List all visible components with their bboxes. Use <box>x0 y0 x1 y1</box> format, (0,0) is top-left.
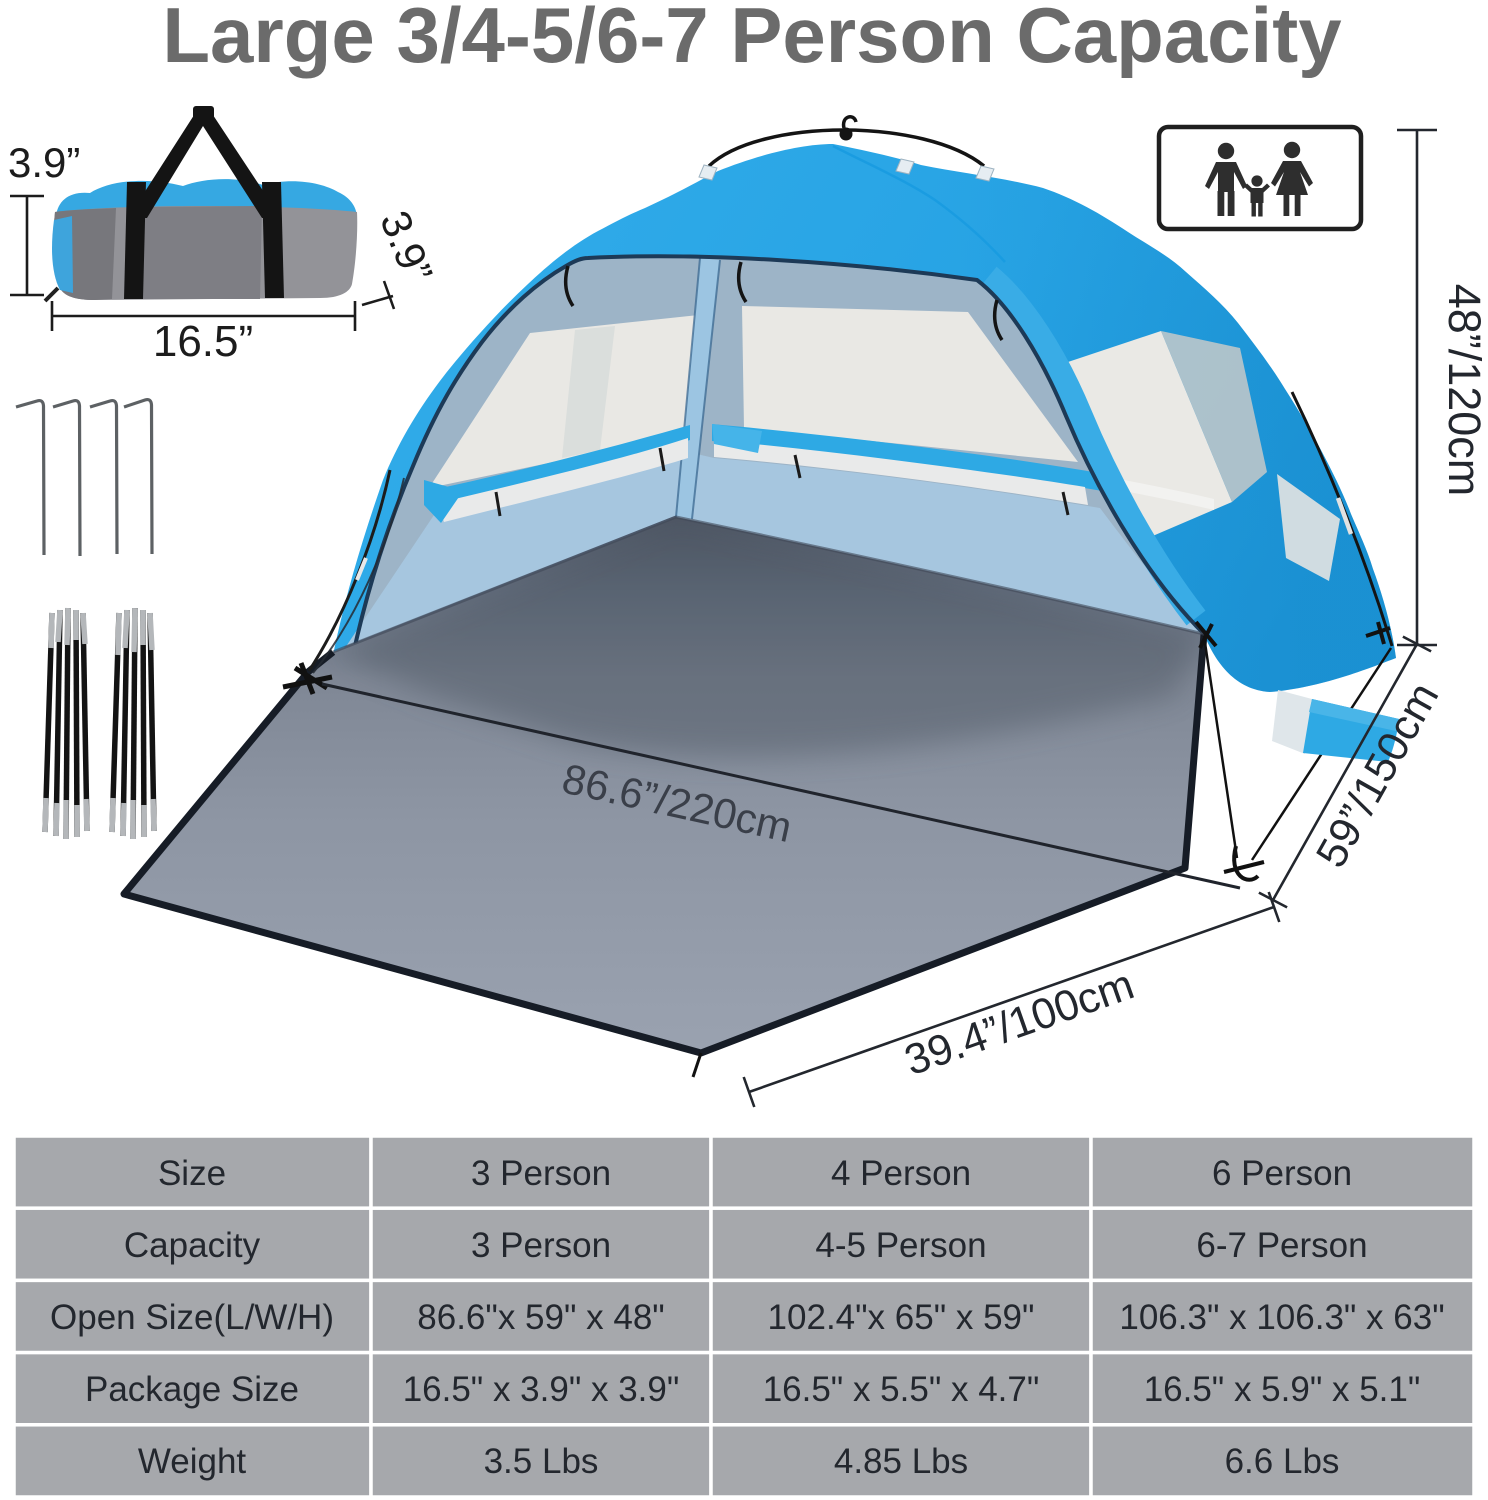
svg-text:4.85 Lbs: 4.85 Lbs <box>834 1442 968 1481</box>
svg-text:6 Person: 6 Person <box>1212 1154 1352 1193</box>
svg-text:16.5”: 16.5” <box>153 317 253 366</box>
svg-text:16.5" x 5.5" x 4.7": 16.5" x 5.5" x 4.7" <box>763 1370 1040 1409</box>
svg-text:4 Person: 4 Person <box>831 1154 971 1193</box>
svg-text:16.5" x 3.9" x 3.9": 16.5" x 3.9" x 3.9" <box>403 1370 680 1409</box>
svg-text:86.6"x 59" x 48": 86.6"x 59" x 48" <box>417 1298 664 1337</box>
svg-text:106.3" x 106.3" x 63": 106.3" x 106.3" x 63" <box>1119 1298 1444 1337</box>
svg-text:Large 3/4-5/6-7 Person Capacit: Large 3/4-5/6-7 Person Capacity <box>162 0 1341 79</box>
svg-text:Capacity: Capacity <box>124 1226 261 1265</box>
svg-text:Open Size(L/W/H): Open Size(L/W/H) <box>50 1298 334 1337</box>
svg-text:16.5" x 5.9" x 5.1": 16.5" x 5.9" x 5.1" <box>1144 1370 1421 1409</box>
svg-text:6.6 Lbs: 6.6 Lbs <box>1225 1442 1340 1481</box>
svg-text:3.9”: 3.9” <box>8 139 80 186</box>
svg-text:3.5 Lbs: 3.5 Lbs <box>484 1442 599 1481</box>
svg-text:102.4"x 65" x 59": 102.4"x 65" x 59" <box>768 1298 1035 1337</box>
svg-text:4-5 Person: 4-5 Person <box>815 1226 986 1265</box>
svg-text:6-7 Person: 6-7 Person <box>1196 1226 1367 1265</box>
svg-text:Weight: Weight <box>138 1442 247 1481</box>
svg-text:3 Person: 3 Person <box>471 1154 611 1193</box>
svg-text:3 Person: 3 Person <box>471 1226 611 1265</box>
svg-text:48”/120cm: 48”/120cm <box>1439 284 1488 497</box>
svg-text:Size: Size <box>158 1154 226 1193</box>
svg-text:Package Size: Package Size <box>85 1370 299 1409</box>
